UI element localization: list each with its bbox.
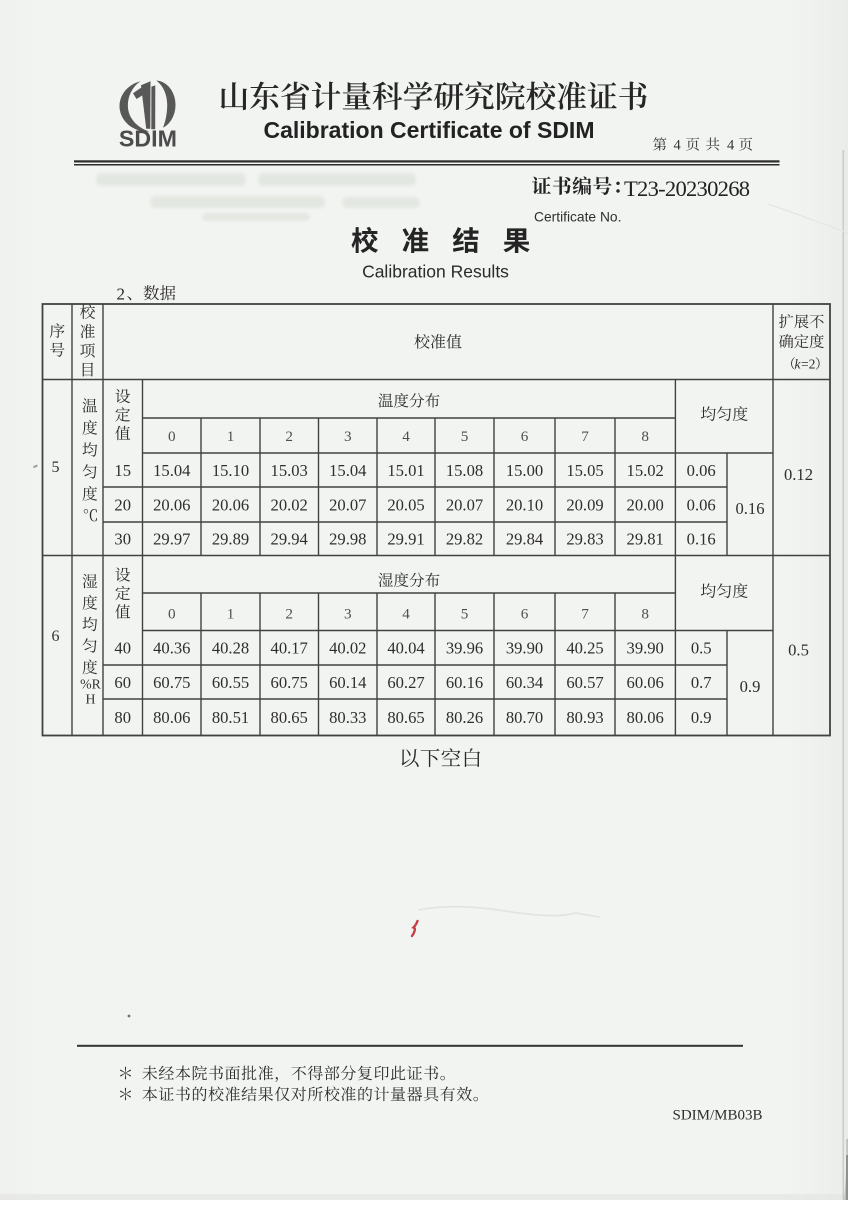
svg-text:=2: =2	[801, 357, 815, 372]
svg-text:60.06: 60.06	[627, 673, 664, 692]
svg-text:15.05: 15.05	[566, 461, 603, 480]
svg-text:20.10: 20.10	[506, 495, 543, 514]
svg-text:Calibration Results: Calibration Results	[362, 261, 509, 281]
svg-text:29.82: 29.82	[446, 530, 483, 549]
svg-text:5: 5	[52, 459, 60, 476]
svg-text:4: 4	[402, 606, 410, 623]
svg-text:0.5: 0.5	[691, 639, 712, 658]
svg-text:20.07: 20.07	[329, 495, 366, 514]
svg-text:60.57: 60.57	[566, 673, 603, 692]
svg-text:2: 2	[117, 285, 126, 304]
svg-text:0.06: 0.06	[687, 461, 716, 480]
svg-text:39.90: 39.90	[627, 639, 664, 658]
svg-text:80.33: 80.33	[329, 708, 366, 727]
svg-text:4: 4	[402, 428, 410, 445]
svg-text:1: 1	[227, 606, 235, 623]
svg-text:0.5: 0.5	[788, 641, 809, 660]
svg-text:4: 4	[674, 138, 682, 154]
svg-text:20.05: 20.05	[387, 495, 424, 514]
svg-text:Certificate No.: Certificate No.	[534, 210, 621, 225]
svg-text:39.96: 39.96	[446, 639, 483, 658]
svg-text:29.91: 29.91	[387, 530, 424, 549]
svg-text:40: 40	[114, 639, 131, 658]
svg-text:40.36: 40.36	[153, 639, 190, 658]
svg-text:20.07: 20.07	[446, 495, 483, 514]
svg-text:39.90: 39.90	[506, 639, 543, 658]
svg-text:3: 3	[344, 606, 352, 623]
svg-text:SDIM: SDIM	[119, 126, 177, 152]
svg-text:8: 8	[641, 606, 649, 623]
svg-text:29.97: 29.97	[153, 530, 190, 549]
svg-text:2: 2	[285, 428, 293, 445]
svg-text:60.55: 60.55	[212, 673, 249, 692]
svg-text:29.94: 29.94	[271, 530, 309, 549]
svg-text:6: 6	[52, 628, 60, 645]
svg-text:15.08: 15.08	[446, 461, 483, 480]
svg-text:60.14: 60.14	[329, 673, 367, 692]
svg-text:15.10: 15.10	[212, 461, 249, 480]
svg-text:6: 6	[521, 428, 529, 445]
svg-text:60.34: 60.34	[506, 673, 544, 692]
svg-text:60: 60	[114, 673, 131, 692]
svg-text:40.25: 40.25	[566, 639, 603, 658]
svg-text:15.02: 15.02	[627, 461, 664, 480]
svg-text:0.9: 0.9	[740, 677, 761, 696]
svg-text:40.17: 40.17	[271, 639, 308, 658]
svg-text:T23-20230268: T23-20230268	[624, 176, 750, 201]
svg-text:80.06: 80.06	[627, 708, 664, 727]
svg-text:60.27: 60.27	[387, 673, 424, 692]
svg-text:30: 30	[114, 530, 131, 549]
svg-text:20.06: 20.06	[153, 495, 190, 514]
svg-text:29.83: 29.83	[566, 530, 603, 549]
svg-text:0.16: 0.16	[735, 499, 764, 518]
svg-text:20: 20	[114, 495, 131, 514]
svg-text:60.75: 60.75	[271, 673, 308, 692]
svg-text:H: H	[86, 691, 96, 706]
svg-text:80.51: 80.51	[212, 708, 249, 727]
svg-text:15.03: 15.03	[271, 461, 308, 480]
svg-text:15.00: 15.00	[506, 461, 543, 480]
svg-text:80.65: 80.65	[387, 708, 424, 727]
svg-text:20.06: 20.06	[212, 495, 249, 514]
svg-text:1: 1	[227, 428, 235, 445]
svg-text:80.65: 80.65	[271, 708, 308, 727]
svg-text:7: 7	[581, 428, 589, 445]
svg-text:%R: %R	[80, 676, 101, 691]
svg-text:8: 8	[641, 428, 649, 445]
svg-text:40.04: 40.04	[387, 639, 425, 658]
svg-text:15.04: 15.04	[329, 461, 367, 480]
svg-text:0.9: 0.9	[691, 708, 712, 727]
svg-text:29.81: 29.81	[627, 530, 664, 549]
svg-text:20.02: 20.02	[271, 495, 308, 514]
svg-text:15.04: 15.04	[153, 461, 191, 480]
svg-text:80.26: 80.26	[446, 708, 483, 727]
svg-text:80: 80	[114, 708, 131, 727]
svg-text:Calibration Certificate of SDI: Calibration Certificate of SDIM	[264, 117, 595, 143]
svg-text:29.98: 29.98	[329, 530, 366, 549]
svg-text:20.09: 20.09	[566, 495, 603, 514]
svg-text:0: 0	[168, 428, 176, 445]
svg-text:60.16: 60.16	[446, 673, 483, 692]
svg-text:80.93: 80.93	[566, 708, 603, 727]
svg-text:4: 4	[727, 138, 735, 154]
svg-text:60.75: 60.75	[153, 673, 190, 692]
svg-text:7: 7	[581, 606, 589, 623]
svg-text:SDIM/MB03B: SDIM/MB03B	[673, 1108, 763, 1124]
svg-text:3: 3	[344, 428, 352, 445]
svg-text:0.12: 0.12	[784, 465, 813, 484]
svg-text:0.7: 0.7	[691, 673, 712, 692]
svg-text:29.84: 29.84	[506, 530, 544, 549]
svg-text:29.89: 29.89	[212, 530, 249, 549]
svg-text:0: 0	[168, 606, 176, 623]
svg-text:40.02: 40.02	[329, 639, 366, 658]
svg-text:6: 6	[521, 606, 529, 623]
svg-text:80.06: 80.06	[153, 708, 190, 727]
svg-text:2: 2	[285, 606, 293, 623]
svg-text:0.06: 0.06	[687, 495, 716, 514]
svg-text:80.70: 80.70	[506, 708, 543, 727]
svg-text:15: 15	[114, 461, 131, 480]
svg-text:5: 5	[461, 428, 469, 445]
svg-text:5: 5	[461, 606, 469, 623]
svg-text:15.01: 15.01	[387, 461, 424, 480]
svg-text:0.16: 0.16	[687, 530, 716, 549]
svg-text:20.00: 20.00	[627, 495, 664, 514]
svg-text:40.28: 40.28	[212, 639, 249, 658]
